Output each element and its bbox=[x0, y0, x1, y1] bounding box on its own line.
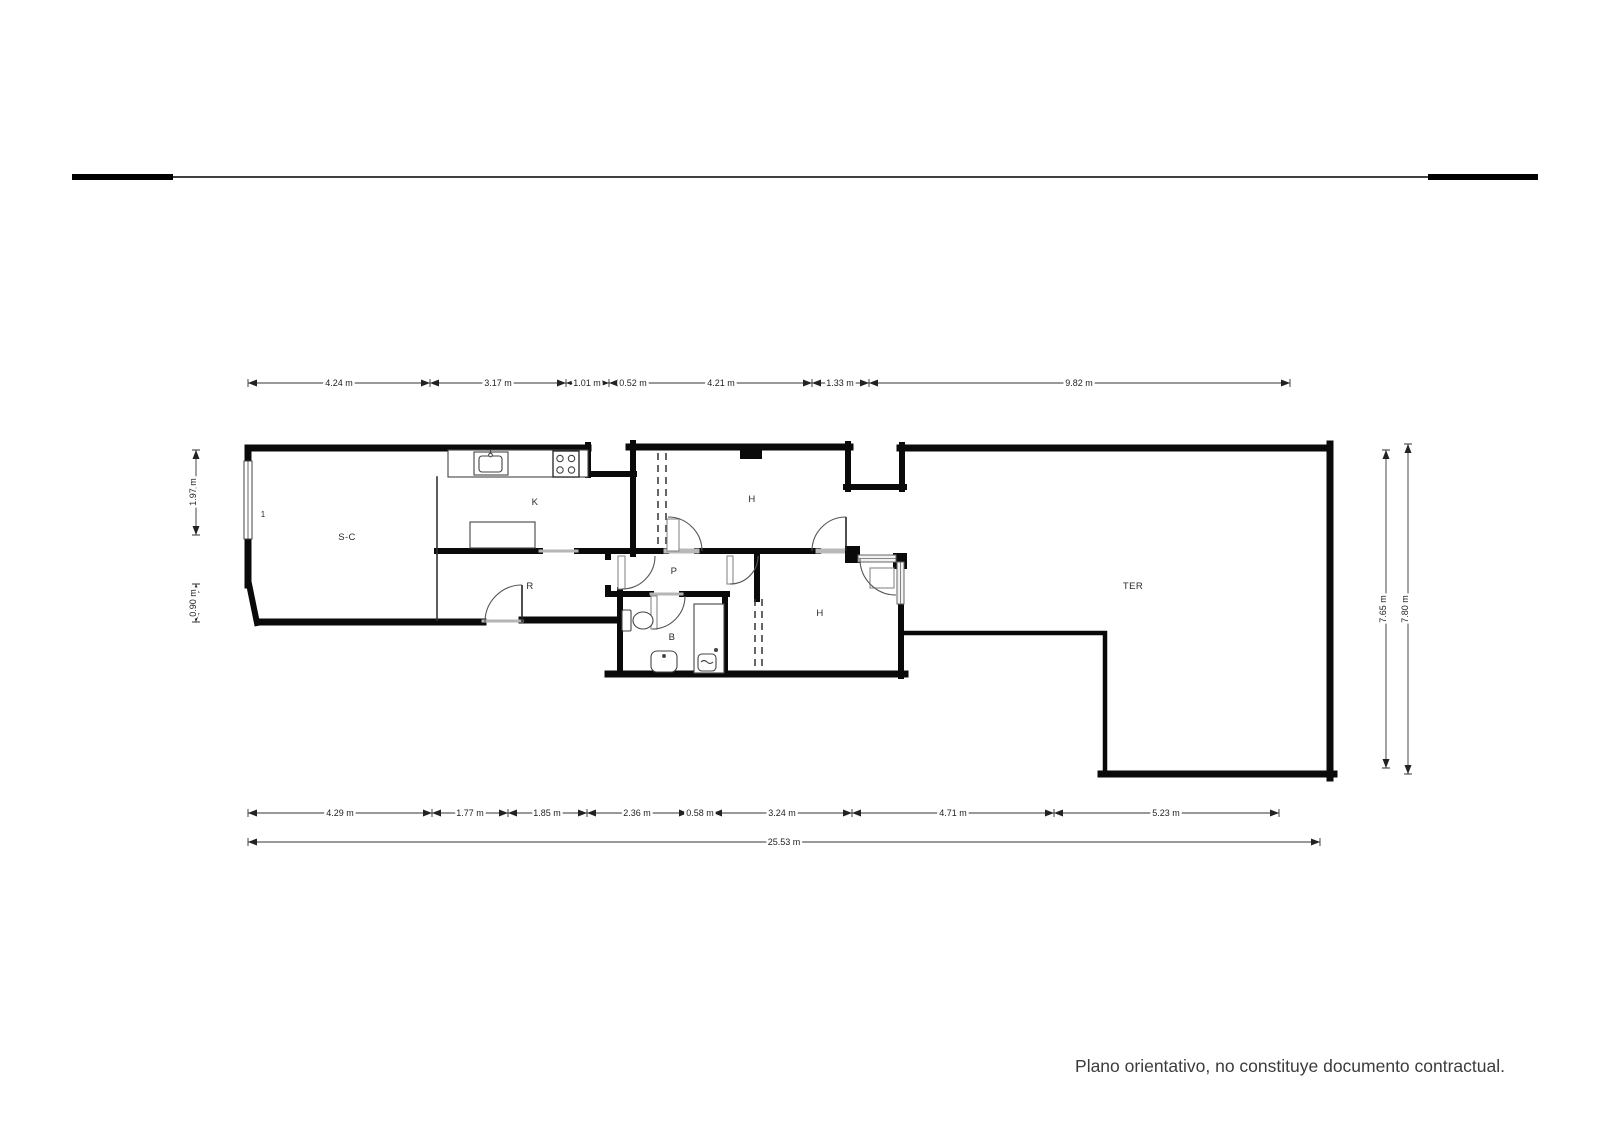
dim-label-bottom-4: 0.58 m bbox=[686, 808, 714, 818]
dimension-chain-bottom: 4.29 m 1.77 m 1.85 m 2.36 m 0.58 m 3.24 … bbox=[248, 808, 1279, 818]
dimension-chain-right: 7.65 m 7.80 m bbox=[1378, 444, 1412, 774]
exterior-walls-secondary bbox=[249, 443, 904, 676]
dim-label-right-1: 7.80 m bbox=[1400, 595, 1410, 623]
entry-door-hall bbox=[485, 585, 522, 622]
door-bedroom2-entrance bbox=[860, 559, 896, 595]
floor-plan-canvas: S-C K R P B H H TER 1 4.24 m 3.17 m 1.01… bbox=[0, 0, 1600, 1131]
dim-label-top-0: 4.24 m bbox=[325, 378, 353, 388]
dim-label-bottom-3: 2.36 m bbox=[623, 808, 651, 818]
window-tag-label: 1 bbox=[261, 510, 266, 519]
terrace-edge-walls bbox=[901, 633, 1105, 774]
kitchen-island bbox=[470, 522, 535, 548]
walls bbox=[248, 443, 1334, 778]
door-bedroom1-left bbox=[667, 517, 702, 551]
dim-label-right-0: 7.65 m bbox=[1378, 595, 1388, 623]
doors bbox=[485, 517, 896, 629]
fixtures bbox=[448, 450, 724, 673]
room-label-living: S-C bbox=[338, 532, 356, 543]
dim-label-top-5: 1.33 m bbox=[826, 378, 854, 388]
door-corridor-right bbox=[727, 556, 758, 584]
bedroom2-window bbox=[897, 562, 904, 604]
room-label-hall: R bbox=[526, 581, 533, 592]
bidet-icon bbox=[651, 651, 677, 672]
room-label-kitchen: K bbox=[532, 497, 539, 508]
dim-label-bottom-7: 5.23 m bbox=[1152, 808, 1180, 818]
dim-label-bottom-5: 3.24 m bbox=[768, 808, 796, 818]
dim-label-bottom-0: 4.29 m bbox=[326, 808, 354, 818]
room-label-terrace: TER bbox=[1123, 581, 1143, 592]
footer-disclaimer: Plano orientativo, no constituye documen… bbox=[1075, 1056, 1505, 1076]
shower-icon bbox=[694, 604, 724, 673]
door-hall-corridor bbox=[618, 556, 655, 589]
dim-label-top-2: 1.01 m bbox=[573, 378, 601, 388]
door-bedroom1-right bbox=[812, 517, 846, 551]
dim-label-top-4: 4.21 m bbox=[707, 378, 735, 388]
dim-label-top-6: 9.82 m bbox=[1065, 378, 1093, 388]
dim-label-top-3: 0.52 m bbox=[619, 378, 647, 388]
exterior-walls bbox=[248, 444, 1334, 778]
bedroom1-duct bbox=[740, 447, 762, 459]
dimension-chain-top: 4.24 m 3.17 m 1.01 m 0.52 m 4.21 m 1.33 … bbox=[248, 378, 1290, 388]
dim-label-total: 25.53 m bbox=[768, 837, 801, 847]
toilet-icon bbox=[622, 610, 653, 631]
dim-label-left-1: 0.90 m bbox=[188, 589, 198, 617]
dimension-total: 25.53 m bbox=[248, 837, 1320, 847]
dimension-chain-left: 1.97 m 0.90 m bbox=[188, 450, 200, 622]
dim-label-bottom-1: 1.77 m bbox=[456, 808, 484, 818]
dim-label-bottom-6: 4.71 m bbox=[939, 808, 967, 818]
sink-icon bbox=[474, 451, 508, 476]
room-label-bathroom: B bbox=[669, 632, 676, 643]
room-label-bedroom2: H bbox=[816, 608, 823, 619]
room-label-corridor: P bbox=[671, 566, 678, 577]
room-label-bedroom1: H bbox=[748, 494, 755, 505]
stove-icon bbox=[553, 451, 579, 477]
door-bathroom bbox=[651, 596, 685, 629]
living-window bbox=[244, 461, 252, 539]
dim-label-left-0: 1.97 m bbox=[188, 478, 198, 506]
dim-label-top-1: 3.17 m bbox=[484, 378, 512, 388]
entrance-glazed-frame bbox=[858, 555, 896, 562]
dim-label-bottom-2: 1.85 m bbox=[533, 808, 561, 818]
